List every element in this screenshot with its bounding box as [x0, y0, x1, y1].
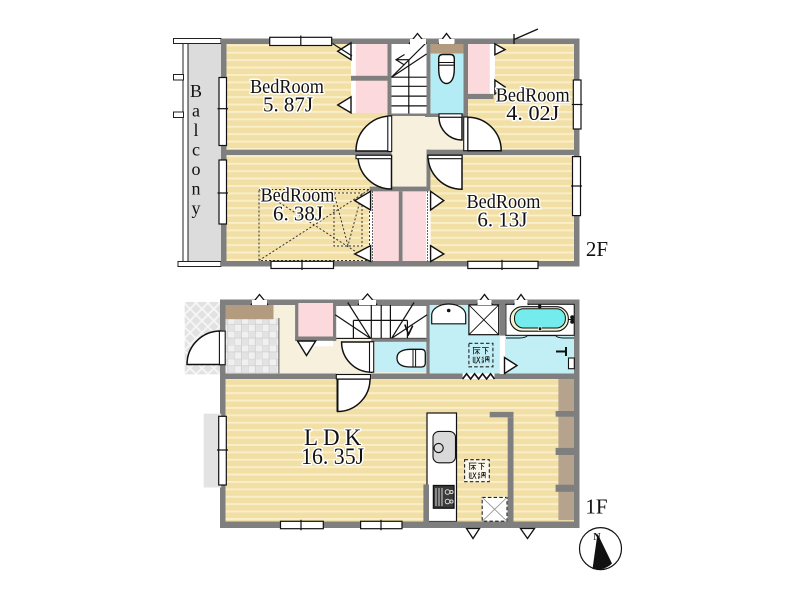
- svg-text:B: B: [190, 81, 202, 101]
- svg-text:1F: 1F: [585, 495, 607, 519]
- svg-text:l: l: [193, 120, 198, 140]
- svg-text:5. 87J: 5. 87J: [263, 93, 313, 117]
- svg-text:N: N: [593, 532, 601, 543]
- svg-text:4. 02J: 4. 02J: [506, 101, 559, 125]
- svg-text:o: o: [192, 159, 201, 179]
- svg-text:2F: 2F: [586, 237, 608, 261]
- svg-text:16. 35J: 16. 35J: [301, 444, 364, 469]
- svg-text:6. 38J: 6. 38J: [273, 202, 323, 226]
- svg-text:y: y: [192, 198, 201, 218]
- svg-text:n: n: [192, 179, 201, 199]
- svg-text:6. 13J: 6. 13J: [477, 207, 527, 231]
- svg-text:c: c: [192, 140, 200, 160]
- svg-text:a: a: [192, 101, 200, 121]
